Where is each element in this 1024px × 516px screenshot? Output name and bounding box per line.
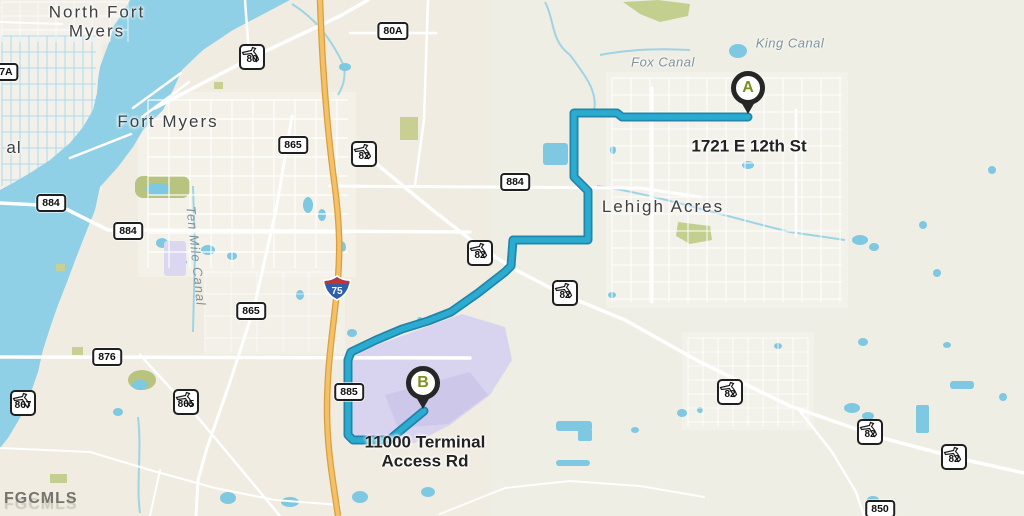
route-map-image[interactable]: North Fort Myers Fort Myers Lehigh Acres… — [0, 0, 1024, 516]
map-canvas — [0, 0, 1024, 516]
